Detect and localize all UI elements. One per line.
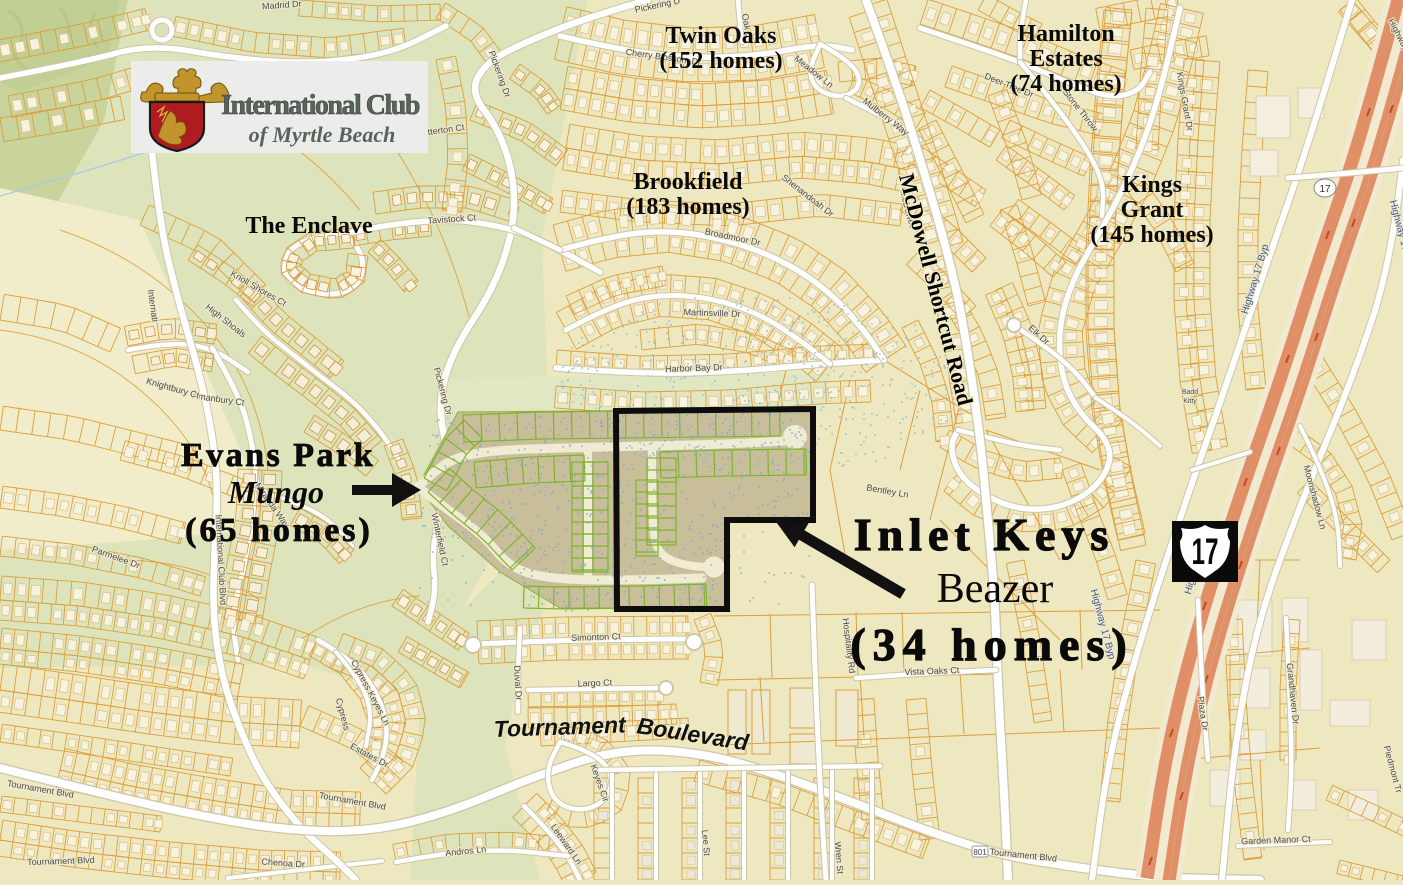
svg-text:Beazer: Beazer [937,566,1054,612]
svg-text:Twin Oaks(152 homes): Twin Oaks(152 homes) [659,23,782,74]
svg-text:Simonton Ct: Simonton Ct [571,631,621,643]
svg-text:(34 homes): (34 homes) [850,619,1133,670]
svg-text:Kitty: Kitty [1183,398,1197,405]
svg-text:Duval Dr: Duval Dr [512,665,524,700]
svg-text:Tournament: Tournament [493,711,627,742]
svg-text:International Club: International Club [221,90,420,121]
svg-text:Badd: Badd [1182,389,1198,396]
svg-text:(65 homes): (65 homes) [185,512,373,549]
svg-text:Evans Park: Evans Park [181,437,375,474]
svg-text:Martinsville Dr: Martinsville Dr [683,307,740,319]
svg-text:Inlet Keys: Inlet Keys [854,509,1115,560]
svg-text:Harbor Bay Dr: Harbor Bay Dr [665,362,723,374]
svg-text:of Myrtle Beach: of Myrtle Beach [249,122,396,147]
svg-text:Largo Ct: Largo Ct [577,677,612,688]
svg-text:Brookfield(183 homes): Brookfield(183 homes) [626,169,749,220]
svg-text:Mungo: Mungo [227,474,324,510]
svg-text:17: 17 [1192,531,1219,572]
svg-text:17: 17 [1319,184,1331,195]
svg-text:801: 801 [973,848,987,857]
svg-text:The Enclave: The Enclave [245,213,373,239]
